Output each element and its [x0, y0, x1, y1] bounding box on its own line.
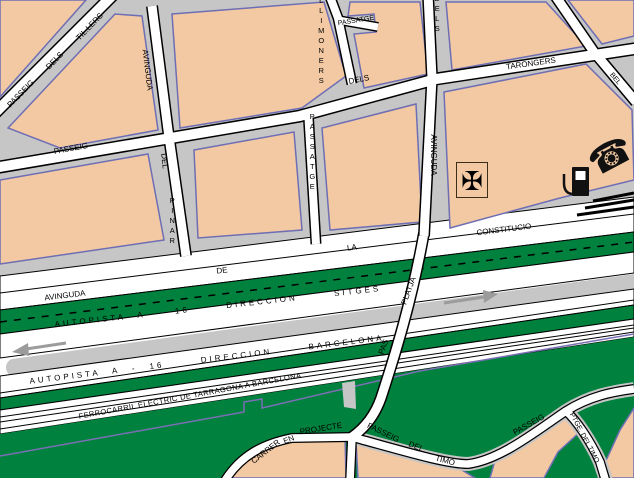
- street-labels: PASSEIGDELSTIL.LERSAVINGUDADELPINARPASSE…: [0, 0, 634, 478]
- street-label-autopista-barcelona: AUTOPISTA A - 16 DIRECCION BARCELONA: [29, 334, 385, 385]
- street-label-passeig-left: PASSEIG: [53, 142, 88, 156]
- street-map: ✠ ☎ PASSEIGDELSTIL.LERSAVINGUDADELPINARP…: [0, 0, 634, 478]
- street-label-avenue-4: CONSTITUCIO: [476, 223, 532, 238]
- street-label-passeig-timo-3: TIMO: [434, 455, 455, 468]
- street-label-pas: PAS: [378, 338, 391, 355]
- street-label-avenue-1: AVINGUDA: [44, 290, 86, 303]
- street-label-tarongers: TARONGERS: [506, 57, 557, 72]
- street-label-en: EN: [282, 434, 295, 446]
- street-label-passatge-stub: PASSATGE: [337, 15, 374, 28]
- street-label-carrer: CARRER: [250, 438, 282, 465]
- street-label-ptge-del-timo: PTGE. DEL TIMO: [568, 412, 600, 464]
- street-label-avenue-3: LA: [347, 243, 358, 252]
- street-label-projecte: PROJECTE: [299, 422, 342, 437]
- street-label-autopista-sitges: AUTOPISTA A - 16 DIRECCION SITGES: [54, 285, 381, 329]
- street-label-passeig-timo-1: PASSEIG: [366, 422, 401, 444]
- street-label-avinguda-pinar-1: AVINGUDA: [141, 49, 154, 91]
- street-label-avinguda-pinar-2: DEL: [159, 153, 169, 169]
- street-label-passeig-tillers-2: DELS: [45, 51, 65, 72]
- street-label-passeig-timo-2: DEL: [407, 440, 424, 453]
- street-label-avenue-2: DE: [216, 266, 228, 275]
- street-label-street-partial-right: BEL: [608, 72, 622, 87]
- street-label-avinguda-vertical: AVINGUDA: [429, 134, 437, 175]
- street-label-platja: PLATJA: [400, 276, 417, 306]
- street-label-passatge-vertical: PASSATGE: [308, 112, 316, 192]
- street-label-ferrocarril: FERROCARRIL ELECTRIC DE TARRAGONA A BARC…: [78, 372, 302, 421]
- street-label-dels-top: DELS: [433, 0, 441, 34]
- street-label-llimoners: LLIMONERS: [317, 0, 325, 86]
- street-label-dels-mid: DELS: [348, 74, 370, 86]
- street-label-avinguda-pinar-3: PINAR: [168, 196, 176, 246]
- street-label-passeig-tillers-3: TIL.LERS: [75, 12, 105, 43]
- street-label-passeig-tillers-1: PASSEIG: [6, 79, 36, 109]
- street-label-passeig-right: PASSEIG: [512, 413, 546, 437]
